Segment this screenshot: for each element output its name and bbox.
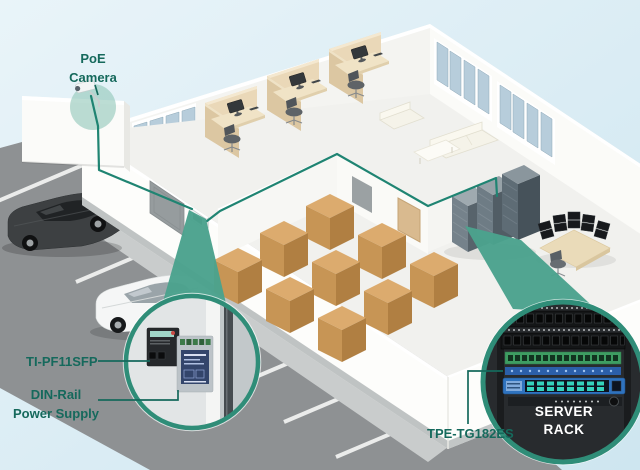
ti-pf11sfp-label: TI-PF11SFP	[26, 353, 98, 372]
tpe-tg182es-switch	[503, 378, 625, 394]
blue-panel	[505, 367, 621, 375]
din-rail-callout-circle	[124, 294, 261, 431]
green-patch-panel	[505, 352, 621, 364]
din-power-supply	[177, 336, 213, 392]
server-rack-label: SERVER RACK	[518, 403, 610, 439]
din-media-converter	[147, 328, 179, 366]
tpe-tg182es-label: TPE-TG182ES	[427, 425, 514, 444]
poe-camera-label: PoE Camera	[57, 50, 129, 88]
din-rail-power-supply-label: DIN-Rail Power Supply	[10, 386, 102, 424]
patch-panel-2	[501, 333, 625, 349]
network-installation-diagram: PoE Camera TI-PF11SFP DIN-Rail Power Sup…	[0, 0, 640, 470]
